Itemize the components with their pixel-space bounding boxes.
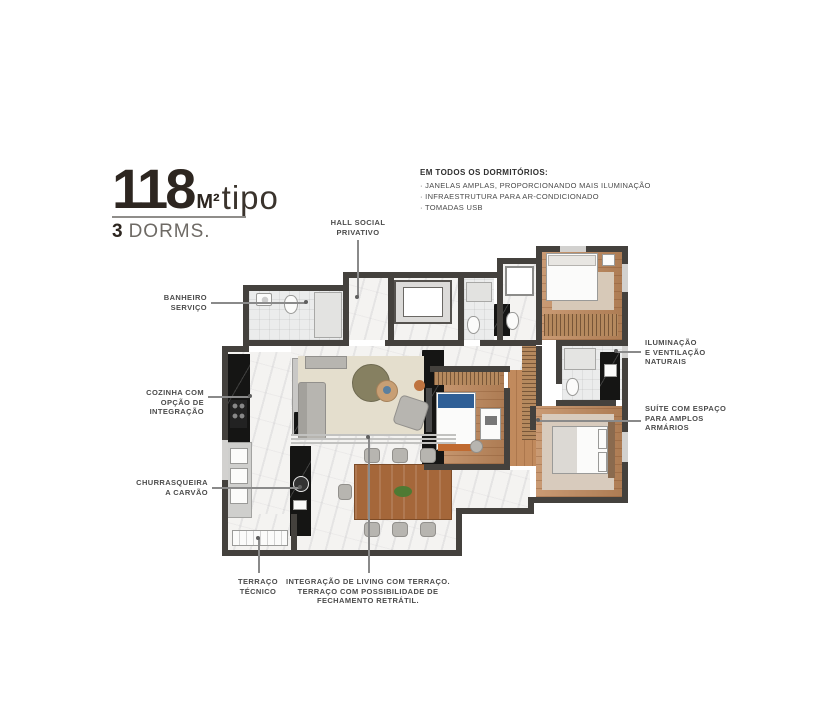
callout-suite: SUÍTE COM ESPAÇO PARA AMPLOS ARMÁRIOS (645, 404, 740, 433)
side-stool-orange (414, 380, 425, 391)
wall-segment (291, 550, 462, 556)
callout-line: A CARVÃO (108, 488, 208, 498)
callout-line: BANHEIRO (130, 293, 207, 303)
table-plant (394, 486, 412, 497)
callout-hall: HALL SOCIAL PRIVATIVO (310, 218, 406, 237)
service-bath-toilet (284, 295, 298, 314)
callout-line: INTEGRAÇÃO DE LIVING COM TERRAÇO. (272, 577, 464, 587)
leader-line-cozinha (208, 396, 250, 398)
sliding-glass-track (291, 438, 456, 440)
bath2-toilet (506, 312, 519, 330)
dorm2-bench-orange (438, 444, 474, 451)
window (560, 246, 586, 252)
suite-bath-toilet (566, 378, 579, 396)
wall-segment (556, 340, 628, 346)
bath2-shower-box (505, 266, 534, 296)
plan-title: 118 M² tipo (112, 164, 279, 214)
kitchen-dishwasher (230, 488, 248, 504)
service-bath-sink (256, 293, 272, 306)
kitchen-oven (230, 468, 248, 484)
leader-dot-cozinha (248, 394, 252, 398)
callout-integracao: INTEGRAÇÃO DE LIVING COM TERRAÇO. TERRAÇ… (272, 577, 464, 606)
dining-chair (420, 522, 436, 537)
leader-dot-hall (355, 295, 359, 299)
wall-segment (530, 406, 536, 430)
wall-segment (536, 346, 542, 406)
kitchen-counter (226, 354, 250, 442)
leader-dot-banheiro (304, 300, 308, 304)
callout-line: HALL SOCIAL (310, 218, 406, 228)
suite-pillow (598, 429, 607, 449)
leader-line-integracao (368, 437, 370, 573)
leader-dot-terraco (256, 536, 260, 540)
service-bath-shower (314, 292, 342, 338)
callout-line: FECHAMENTO RETRÁTIL. (272, 596, 464, 606)
callout-line: COZINHA COM (120, 388, 204, 398)
laundry-bench (232, 530, 288, 546)
note-item: · JANELAS AMPLAS, PROPORCIONANDO MAIS IL… (420, 180, 700, 191)
dorm-count: 3 (112, 221, 124, 242)
sideboard (305, 356, 347, 369)
leader-dot-iluminacao (614, 349, 618, 353)
wall-segment (556, 346, 562, 384)
dorm-label: DORMS. (129, 221, 211, 242)
suite-bath-shower (564, 348, 596, 370)
callout-line: ARMÁRIOS (645, 423, 740, 433)
wall-segment (343, 272, 349, 346)
wall-segment (243, 285, 349, 291)
leader-dot-integracao (366, 435, 370, 439)
callout-line: SERVIÇO (130, 303, 207, 313)
area-value: 118 (112, 164, 193, 214)
dining-chair (338, 484, 352, 500)
elevator-car (403, 287, 443, 317)
dorm2-pillow-blue (438, 394, 474, 408)
suite-pillow (598, 452, 607, 472)
callout-line: PARA AMPLOS (645, 414, 740, 424)
dining-chair (392, 448, 408, 463)
wall-segment (456, 508, 534, 514)
window (222, 440, 228, 480)
dormitory-features-note: EM TODOS OS DORMITÓRIOS: · JANELAS AMPLA… (420, 168, 700, 213)
dorms-line: 3DORMS. (112, 221, 211, 243)
callout-line: PRIVATIVO (310, 228, 406, 238)
note-heading: EM TODOS OS DORMITÓRIOS: (420, 168, 700, 177)
note-item: · INFRAESTRUTURA PARA AR-CONDICIONADO (420, 191, 700, 202)
room-hall-social (349, 278, 388, 340)
wall-segment (243, 340, 349, 346)
callout-line: CHURRASQUEIRA (108, 478, 208, 488)
leader-line-banheiro (211, 302, 306, 304)
wall-segment (222, 550, 297, 556)
dining-chair (392, 522, 408, 537)
suite-blanket (553, 427, 577, 473)
wall-segment (430, 366, 510, 372)
dorm1-nightstand (602, 254, 615, 266)
window (622, 264, 628, 292)
leader-dot-churrasqueira (298, 485, 302, 489)
floor-plan-page: 118 M² tipo 3DORMS. EM TODOS OS DORMITÓR… (0, 0, 826, 707)
callout-line: OPÇÃO DE (120, 398, 204, 408)
leader-line-churrasqueira (212, 487, 300, 489)
leader-line-iluminacao (617, 351, 641, 353)
kitchen-sink (230, 448, 248, 464)
callout-line: TERRAÇO COM POSSIBILIDADE DE (272, 587, 464, 597)
dorm2-wardrobe (434, 372, 500, 385)
note-item: · TOMADAS USB (420, 202, 700, 213)
dorm2-chair (470, 440, 483, 453)
charcoal-grill (293, 476, 309, 492)
dorm2-laptop (485, 416, 497, 425)
wall-segment (456, 508, 462, 556)
dining-chair (364, 448, 380, 463)
callout-line: INTEGRAÇÃO (120, 407, 204, 417)
callout-churrasqueira: CHURRASQUEIRA A CARVÃO (108, 478, 208, 497)
wall-segment (528, 497, 628, 503)
suite-bath-sink (604, 364, 617, 377)
leader-line-terraco (258, 538, 260, 573)
sofa (298, 382, 326, 440)
grill-counter (293, 500, 307, 510)
suite-headboard (608, 422, 615, 478)
title-divider (112, 216, 246, 218)
window (622, 432, 628, 462)
wall-segment (424, 464, 510, 470)
table-decor (383, 386, 391, 394)
wall-segment (385, 340, 464, 346)
wall-segment (504, 388, 510, 468)
sliding-glass-track (291, 434, 456, 436)
area-suffix: tipo (222, 181, 279, 214)
bath1-shower (466, 282, 492, 302)
leader-dot-suite (536, 418, 540, 422)
cooktop (230, 400, 247, 428)
wall-segment (556, 400, 616, 406)
callout-iluminacao: ILUMINAÇÃO E VENTILAÇÃO NATURAIS (645, 338, 735, 367)
dining-chair (420, 448, 436, 463)
wall-segment (348, 272, 503, 278)
callout-line: ILUMINAÇÃO (645, 338, 735, 348)
leader-line-suite (539, 420, 641, 422)
callout-banheiro: BANHEIRO SERVIÇO (130, 293, 207, 312)
callout-line: SUÍTE COM ESPAÇO (645, 404, 740, 414)
leader-line-hall (357, 240, 359, 296)
wall-segment (458, 278, 464, 340)
dorm1-wardrobe (544, 314, 618, 336)
dorm1-pillows (548, 255, 596, 266)
wall-segment (497, 258, 542, 264)
dining-chair (364, 522, 380, 537)
wall-segment (388, 278, 394, 340)
area-unit: M² (196, 192, 219, 212)
callout-cozinha: COZINHA COM OPÇÃO DE INTEGRAÇÃO (120, 388, 204, 417)
bath1-toilet (467, 316, 480, 334)
callout-line: NATURAIS (645, 357, 735, 367)
callout-line: E VENTILAÇÃO (645, 348, 735, 358)
sliding-glass-track (291, 442, 456, 444)
wall-segment (497, 278, 503, 340)
wall-segment (480, 340, 536, 346)
